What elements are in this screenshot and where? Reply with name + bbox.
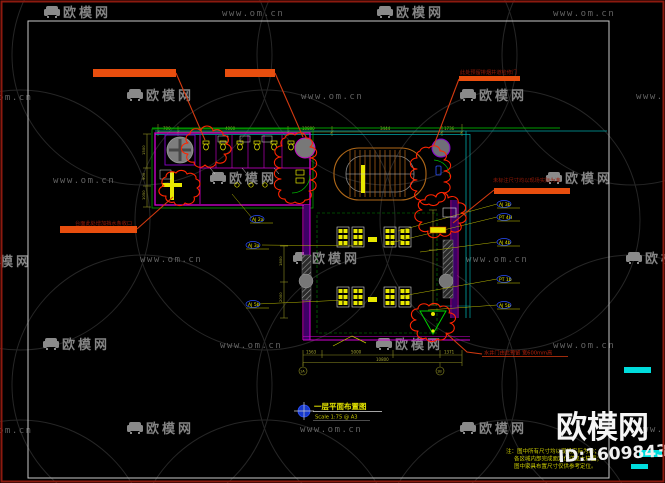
watermark-brand: 欧模网 — [312, 251, 360, 267]
watermark-url: www.om.cn — [466, 255, 528, 265]
watermark-url: www.om.cn — [553, 9, 615, 19]
column-round — [439, 274, 453, 288]
dim-value: 10800 — [376, 357, 389, 362]
site-watermark: 欧模网 ID:1609843 — [556, 410, 665, 467]
svg-text:AJ 2a: AJ 2a — [252, 217, 264, 223]
drawing-title: 一层平面布置图 — [314, 401, 367, 411]
callout-bar — [225, 69, 275, 77]
drawing-scale: Scale 1:75 @ A3 — [315, 415, 358, 421]
watermark-brand: 欧模网 — [396, 5, 444, 21]
watermark-brand: 欧模网 — [565, 171, 613, 187]
svg-text:AJ 3b: AJ 3b — [499, 202, 511, 208]
svg-text:1B: 1B — [437, 370, 442, 374]
dim-value: 1563 — [306, 350, 317, 355]
callout-bar — [93, 69, 176, 77]
callout-text: 台面此处增加挡水条收口 — [75, 219, 132, 227]
watermark-brand-partial: 欧模网 — [0, 254, 32, 270]
column-round — [299, 274, 313, 288]
watermark-brand: 欧模网 — [479, 421, 527, 437]
watermark-url: www.om.cn — [140, 255, 202, 265]
svg-text:AJ 4b: AJ 4b — [499, 240, 511, 246]
dim-value: 1371 — [444, 350, 455, 355]
dim-value: 1800 — [278, 256, 283, 266]
callout-bar — [494, 188, 570, 194]
dim-value: 2000 — [278, 292, 283, 302]
watermark-brand: 欧模网 — [479, 88, 527, 104]
stair-rail — [361, 165, 365, 193]
dim-value: 700 — [163, 126, 171, 131]
watermark-brand: 欧模网 — [146, 88, 194, 104]
cad-screenshot: 欧模网 www.om.cn 欧模网 www.om.cn om.cn 欧模网 ww… — [0, 0, 665, 483]
site-watermark-brand: 欧模网 — [556, 410, 649, 446]
callout-text: 水井门由此预留 宽600mm高 — [484, 349, 552, 357]
callout-bar — [60, 226, 137, 233]
watermark-url: www.om.cn — [301, 92, 363, 102]
watermark-brand: 欧模网 — [146, 421, 194, 437]
svg-text:1A: 1A — [300, 370, 305, 374]
watermark-url: www.om.cn — [553, 341, 615, 351]
watermark-brand: 欧模网 — [395, 337, 443, 353]
watermark-brand-partial: 欧模网 — [645, 251, 665, 267]
watermark-url: www.om.cn — [300, 425, 362, 435]
dim-value: 1736 — [444, 126, 455, 131]
callout-text: 未标注尺寸均以现场实际为准 — [493, 176, 560, 184]
callout-bar — [459, 76, 520, 81]
dim-value: 4000 — [225, 126, 236, 131]
dim-value: 3444 — [380, 126, 391, 131]
svg-text:PT 1b: PT 1b — [499, 277, 512, 283]
column-round — [167, 137, 193, 163]
dim-value: 1500 — [141, 145, 146, 155]
svg-text:AJ 5b: AJ 5b — [248, 302, 260, 308]
watermark-url: www.om.cn — [222, 9, 284, 19]
watermark-brand: 欧模网 — [62, 337, 110, 353]
svg-text:AJ 5b: AJ 5b — [499, 303, 511, 309]
callout-text: 此处预留排烟井道检修门 — [460, 68, 517, 76]
dim-value: 5000 — [351, 350, 362, 355]
svg-text:PT 4H: PT 4H — [499, 215, 512, 221]
yellow-fixture — [162, 183, 182, 187]
watermark-url: www.om.cn — [53, 176, 115, 186]
dim-value: 1050 — [141, 190, 146, 200]
highlight-box — [430, 227, 446, 233]
watermark-url: www.om.cn — [220, 341, 282, 351]
watermark-brand: 欧模网 — [63, 5, 111, 21]
watermark-url-partial: www. — [636, 92, 664, 102]
svg-text:AJ 3a: AJ 3a — [248, 243, 260, 249]
dim-value: 900 — [141, 172, 146, 180]
